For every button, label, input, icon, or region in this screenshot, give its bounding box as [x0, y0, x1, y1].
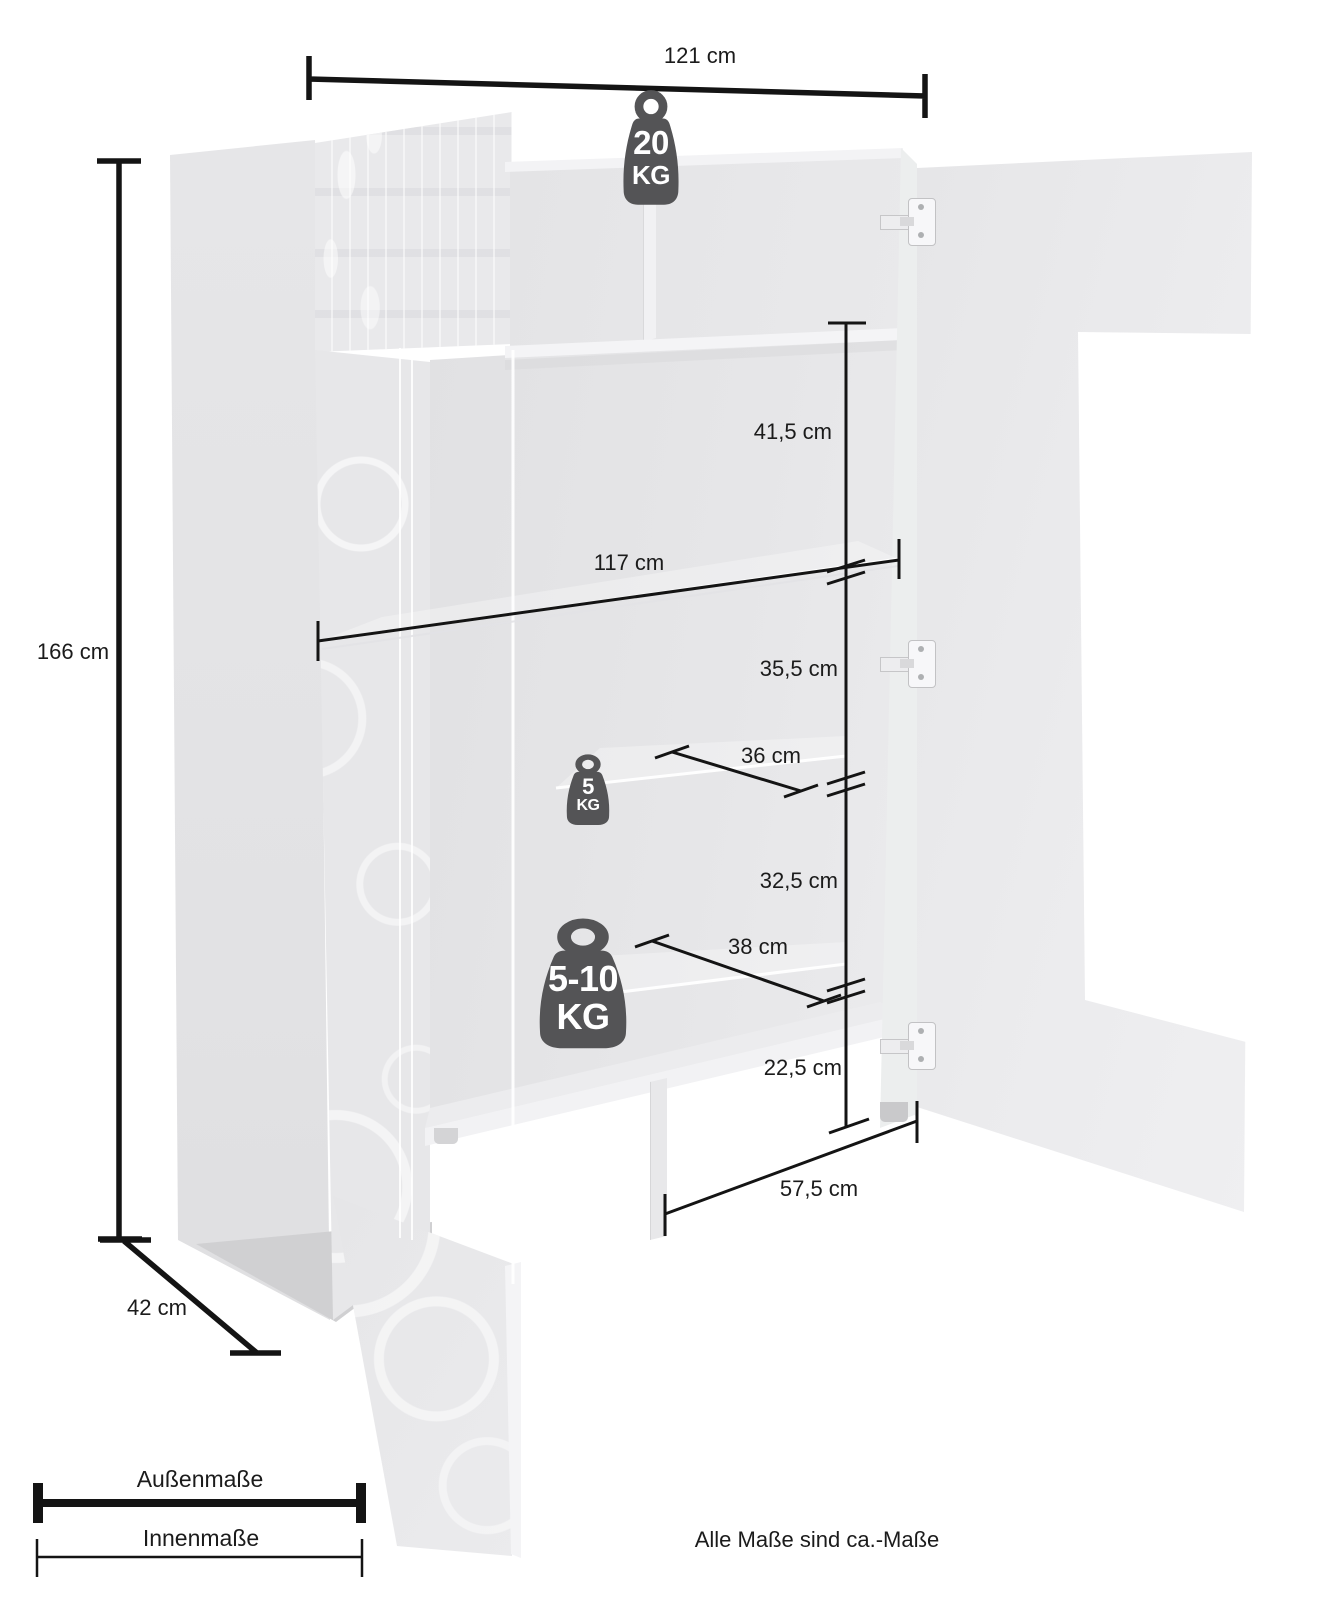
- dim-label-top-section-height: 41,5 cm: [702, 420, 832, 444]
- dim-label-outer-height: 166 cm: [23, 640, 123, 664]
- weight-unit: KG: [616, 160, 686, 191]
- weight-unit: KG: [561, 797, 615, 815]
- weight-5kg-icon: 5 KG: [561, 753, 615, 827]
- dim-label-inner-width: 117 cm: [569, 551, 689, 575]
- lines-overlay: [0, 0, 1334, 1600]
- weight-value: 5-10: [528, 958, 638, 1000]
- legend-inner-label: Innenmaße: [101, 1525, 301, 1552]
- dim-label-outer-depth: 42 cm: [107, 1296, 207, 1320]
- dim-label-lower-shelf-depth: 38 cm: [698, 935, 818, 959]
- dim-label-base-section-height: 22,5 cm: [712, 1056, 842, 1080]
- dim-base-width-line: [665, 1101, 917, 1236]
- glass-shelf-large-thickness: [322, 566, 898, 649]
- dim-vertical-bottom-cap: [829, 1119, 869, 1133]
- weight-value: 20: [616, 124, 686, 162]
- weight-unit: KG: [528, 996, 638, 1038]
- dim-vertical-stack-line: [828, 323, 866, 1126]
- product-dimension-diagram: 20 KG 5 KG 5-10 KG 121 cm 166 cm 42 cm 1…: [0, 0, 1334, 1600]
- dim-height-line: [97, 161, 142, 1239]
- legend-outer-label: Außenmaße: [100, 1466, 300, 1493]
- dim-label-glass-shelf-depth: 36 cm: [711, 744, 831, 768]
- dim-label-middle-section-height: 35,5 cm: [708, 657, 838, 681]
- dim-label-lower-section-height: 32,5 cm: [708, 869, 838, 893]
- weight-5-10kg-icon: 5-10 KG: [528, 916, 638, 1052]
- weight-20kg-icon: 20 KG: [616, 88, 686, 208]
- dim-label-base-compartment-width: 57,5 cm: [759, 1177, 879, 1201]
- dimensions-note: Alle Maße sind ca.-Maße: [617, 1527, 1017, 1553]
- dim-label-outer-width: 121 cm: [640, 44, 760, 68]
- outer-dimension-lines: [97, 56, 925, 1353]
